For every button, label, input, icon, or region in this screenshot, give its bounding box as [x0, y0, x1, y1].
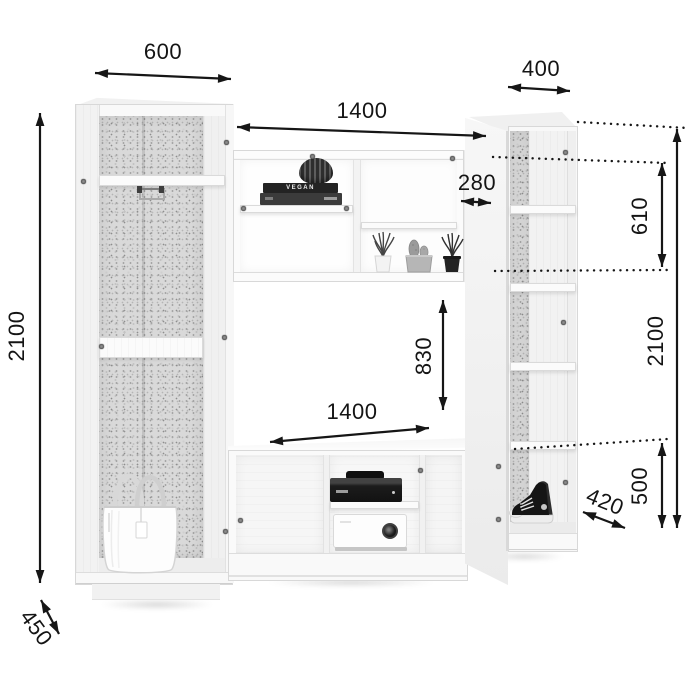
- shelf-unit-left-compartment: [240, 160, 353, 272]
- dotted-leader-1: [578, 122, 688, 128]
- cam-fitting: [418, 468, 423, 473]
- column-right-inner-panel: [567, 131, 576, 526]
- dim-total-height-right-label: 2100: [643, 316, 669, 367]
- decorative-vase: [299, 158, 333, 184]
- handbag: [97, 450, 183, 580]
- cam-fitting: [223, 529, 228, 534]
- dim-niche-height-label: 830: [411, 337, 437, 375]
- rail-bracket-left: [137, 186, 142, 193]
- console-power-led: [392, 491, 395, 494]
- rail-bracket-right: [159, 186, 164, 193]
- projector-base: [335, 547, 407, 551]
- cam-fitting: [222, 335, 227, 340]
- plant-white-pot: [370, 231, 396, 273]
- shelf-left-mid-shelf: [240, 205, 353, 213]
- tv-stand-plinth-line: [229, 575, 467, 577]
- wardrobe-plinth: [92, 584, 220, 600]
- column-shelf-1: [510, 205, 576, 214]
- cactus-planter: [403, 239, 435, 273]
- console-logo: [336, 490, 348, 493]
- dim-niche-width-label: 1400: [327, 399, 378, 425]
- cam-fitting: [241, 206, 246, 211]
- column-back-panel: [510, 131, 529, 526]
- dim-left-depth-label: 450: [14, 605, 57, 651]
- column-shelf-3: [510, 362, 576, 371]
- column-inner-face: [529, 131, 567, 526]
- dim-left-width-label: 600: [144, 39, 182, 65]
- cam-fitting: [561, 320, 566, 325]
- wardrobe-cross-rail: [99, 337, 203, 358]
- book-bottom: [260, 193, 342, 205]
- dim-shelf-depth-label: 280: [458, 170, 496, 196]
- cam-fitting: [99, 344, 104, 349]
- dim-upper-height-label: 610: [627, 197, 653, 235]
- dim-arrow-center-width: [237, 123, 486, 140]
- dim-arrow-total-height-right: [673, 129, 682, 528]
- dim-arrow-total-height-left: [36, 113, 45, 583]
- dim-center-width-label: 1400: [337, 98, 388, 124]
- media-console: [330, 471, 402, 502]
- cam-fitting: [224, 140, 229, 145]
- dim-total-height-left-label: 2100: [4, 311, 30, 362]
- column-bottom-front: [509, 533, 577, 550]
- cam-fitting: [310, 154, 315, 159]
- projector-lens: [382, 523, 398, 539]
- tv-stand-right-compartment: [426, 455, 462, 553]
- shelf-unit-divider: [353, 160, 361, 272]
- cam-fitting: [238, 518, 243, 523]
- tv-stand-left-compartment: [236, 455, 323, 553]
- tv-stand-center-shelf: [330, 501, 419, 509]
- column-shelf-2: [510, 283, 576, 292]
- sneakers: [508, 477, 556, 527]
- cam-fitting: [496, 517, 501, 522]
- dim-base-height-label: 500: [627, 467, 653, 505]
- plant-black-pot: [438, 232, 466, 273]
- furniture-dimension-diagram: VEGAN: [0, 0, 700, 700]
- shelf-right-mid-shelf: [361, 222, 457, 229]
- cam-fitting: [563, 480, 568, 485]
- dim-right-depth-label: 420: [582, 483, 627, 521]
- projector-vent: [340, 521, 351, 523]
- projector: [333, 512, 409, 552]
- shelf-unit-bottom-board: [234, 272, 463, 281]
- dim-arrow-left-width: [95, 69, 231, 83]
- cam-fitting: [344, 206, 349, 211]
- book-top: VEGAN: [263, 183, 338, 193]
- dim-arrow-upper-height: [658, 163, 667, 267]
- cam-fitting: [496, 464, 501, 469]
- dim-right-width-label: 400: [522, 56, 560, 82]
- column-shelf-4: [510, 441, 576, 450]
- wardrobe-top-shelf: [99, 175, 225, 186]
- cam-fitting: [563, 150, 568, 155]
- dim-arrow-niche-height: [439, 300, 448, 410]
- dim-arrow-right-width: [508, 83, 570, 94]
- tv-stand-divider-left: [323, 455, 330, 553]
- shelf-unit-top-board: [234, 151, 463, 160]
- book-bottom-text-mark2: [265, 197, 273, 200]
- cam-fitting: [81, 179, 86, 184]
- cam-fitting: [450, 156, 455, 161]
- book-bottom-text-mark: [324, 197, 337, 200]
- dim-arrow-base-height: [658, 443, 667, 528]
